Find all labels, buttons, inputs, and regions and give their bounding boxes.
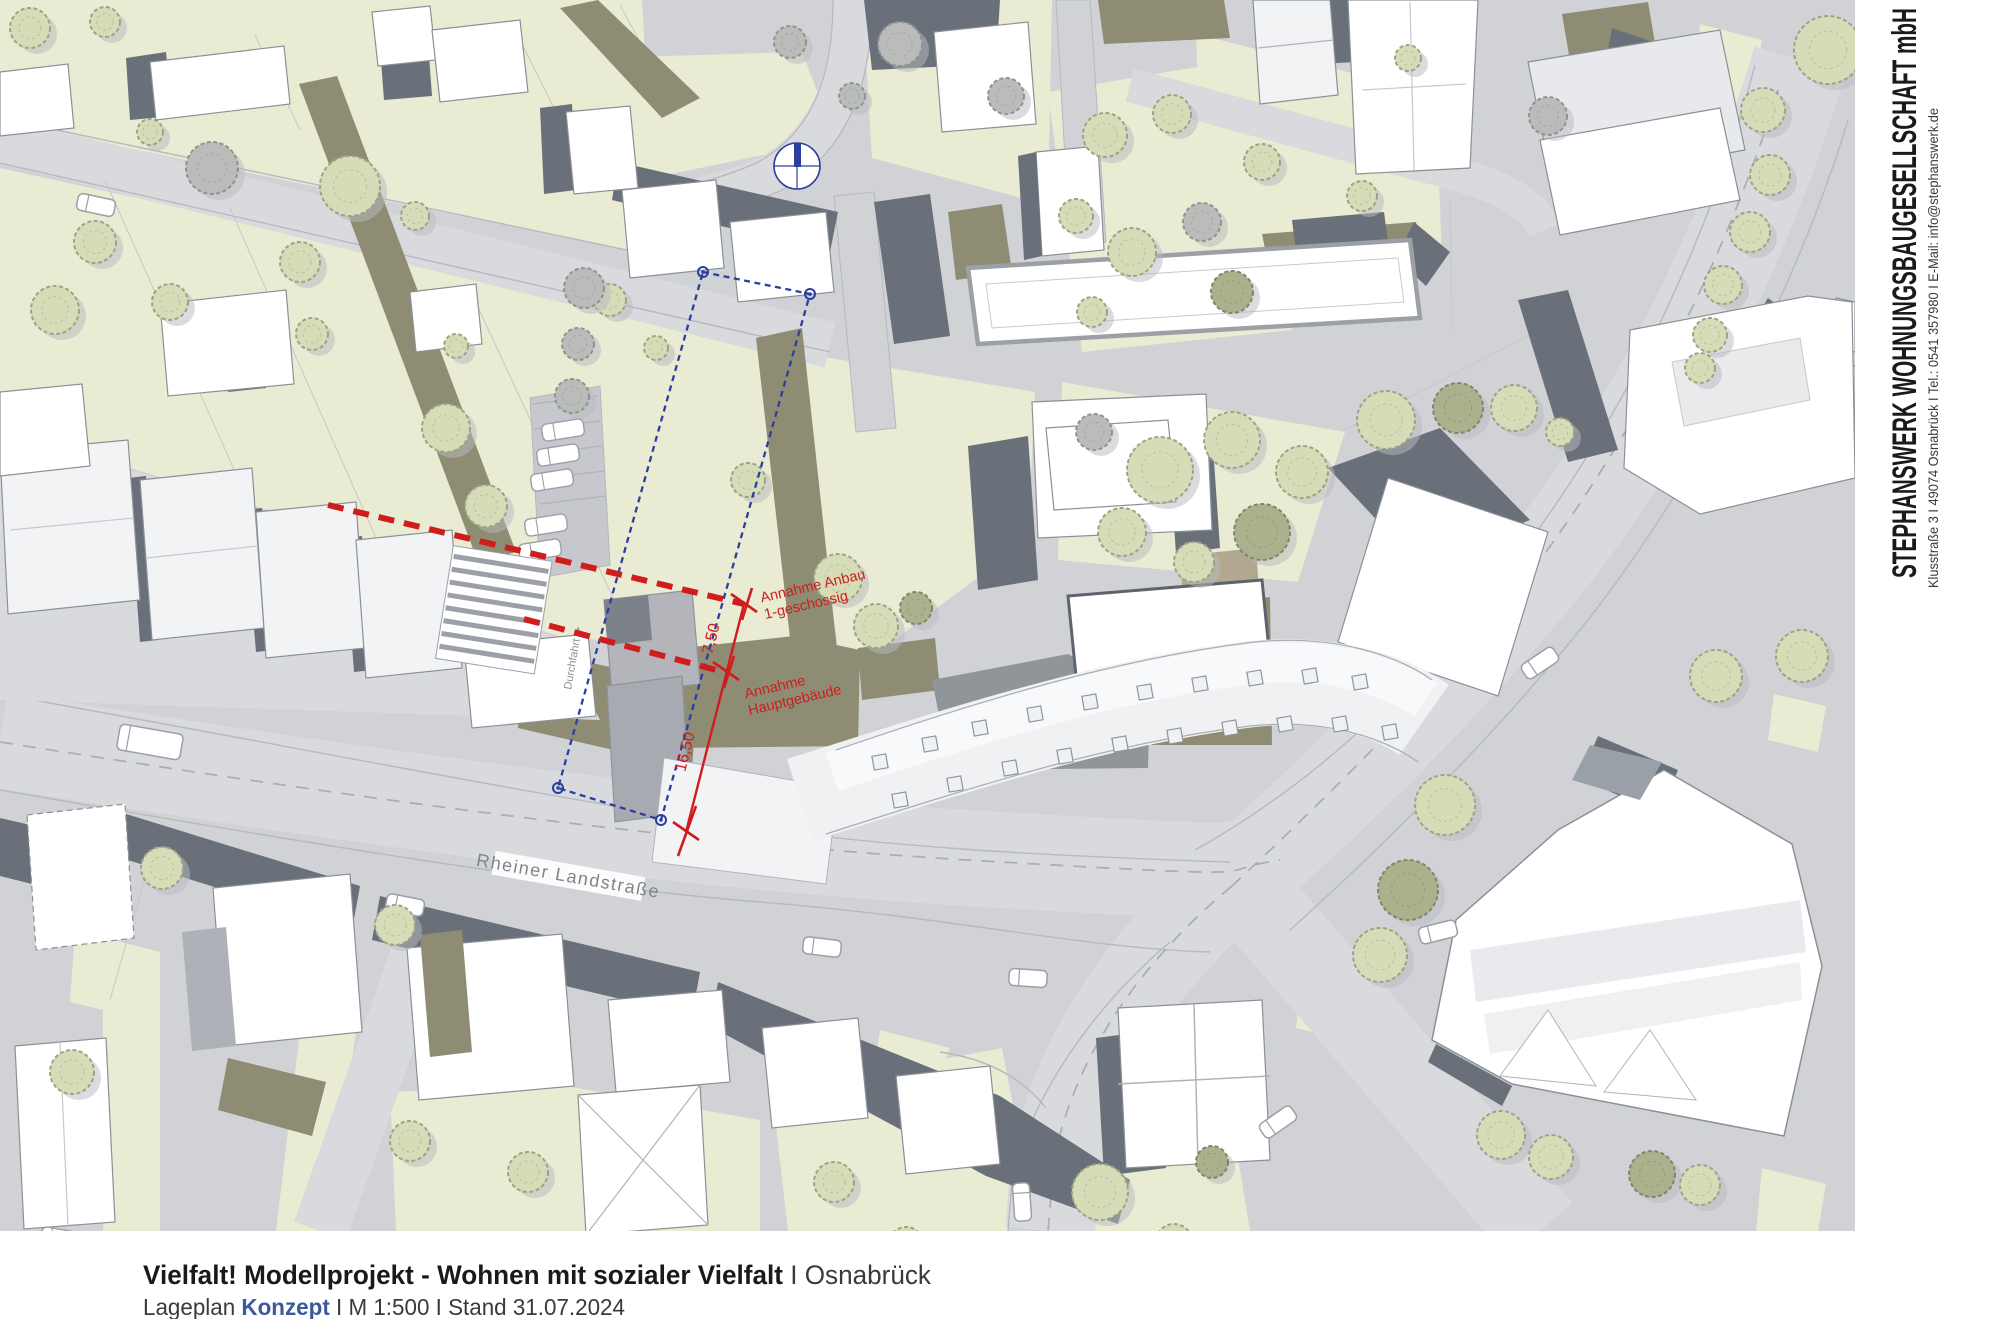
- svg-text:Lageplan Konzept I M 1:500 I S: Lageplan Konzept I M 1:500 I Stand 31.07…: [143, 1294, 625, 1319]
- svg-text:STEPHANSWERK WOHNUNGSBAUGESELL: STEPHANSWERK WOHNUNGSBAUGESELLSCHAFT mbH: [1886, 8, 1924, 578]
- svg-text:Klusstraße 3 I 49074 Osnabrück: Klusstraße 3 I 49074 Osnabrück I Tel.: 0…: [1925, 108, 1941, 588]
- svg-text:Vielfalt! Modellprojekt - Wohn: Vielfalt! Modellprojekt - Wohnen mit soz…: [143, 1260, 932, 1290]
